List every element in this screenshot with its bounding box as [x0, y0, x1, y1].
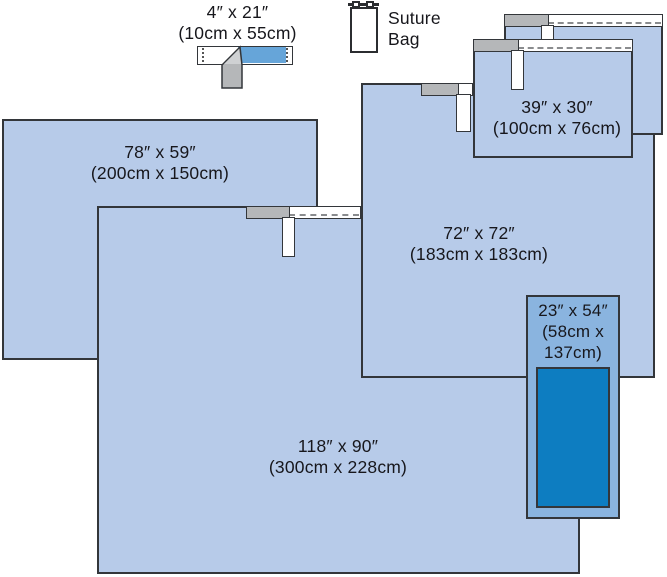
- size-inches: 23″ x 54″: [527, 300, 619, 321]
- drape-72x72-adhesive-tab: [421, 83, 459, 96]
- label-suture-bag: Suture Bag: [388, 8, 478, 50]
- label-tape-4x21: 4″ x 21″ (10cm x 55cm): [140, 2, 335, 44]
- perforation-dash-line: [548, 22, 661, 24]
- size-cm: (10cm x 55cm): [140, 23, 335, 44]
- drape-118x90-pull-tab: [282, 217, 295, 257]
- op-tape-gray-fold: [216, 45, 248, 91]
- label-drape-72x72: 72″ x 72″ (183cm x 183cm): [379, 223, 579, 265]
- size-inches: 39″ x 30″: [462, 97, 652, 118]
- op-tape-dotted-end-left: [202, 48, 204, 62]
- suture-bag-label-line2: Bag: [388, 29, 478, 50]
- drape-39x30-front-fold-strip: [516, 39, 633, 52]
- size-cm-line2: 137cm): [527, 342, 619, 363]
- perforation-dash-line: [518, 47, 631, 49]
- label-drape-118x90: 118″ x 90″ (300cm x 228cm): [228, 436, 448, 478]
- size-cm: (300cm x 228cm): [228, 457, 448, 478]
- size-inches: 118″ x 90″: [228, 436, 448, 457]
- size-cm: (183cm x 183cm): [379, 244, 579, 265]
- drape-39x30-front-pull-tab: [511, 50, 524, 90]
- drape-pack-diagram: 4″ x 21″ (10cm x 55cm) Suture Bag 39″ x …: [0, 0, 667, 577]
- suture-bag-label-line1: Suture: [388, 8, 478, 29]
- incise-film-window: [536, 367, 610, 508]
- drape-39x30-back-fold-strip: [546, 14, 663, 27]
- size-inches: 4″ x 21″: [140, 2, 335, 23]
- suture-bag-icon: [350, 7, 378, 53]
- drape-118x90-fold-strip: [287, 206, 361, 219]
- size-cm-line1: (58cm x: [527, 321, 619, 342]
- perforation-dash-line: [289, 214, 359, 216]
- label-drape-78x59: 78″ x 59″ (200cm x 150cm): [60, 142, 260, 184]
- label-drape-23x54: 23″ x 54″ (58cm x 137cm): [527, 300, 619, 363]
- size-inches: 78″ x 59″: [60, 142, 260, 163]
- size-cm: (100cm x 76cm): [462, 118, 652, 139]
- size-inches: 72″ x 72″: [379, 223, 579, 244]
- op-tape-dotted-end-right: [286, 48, 288, 62]
- size-cm: (200cm x 150cm): [60, 163, 260, 184]
- label-drape-39x30: 39″ x 30″ (100cm x 76cm): [462, 97, 652, 139]
